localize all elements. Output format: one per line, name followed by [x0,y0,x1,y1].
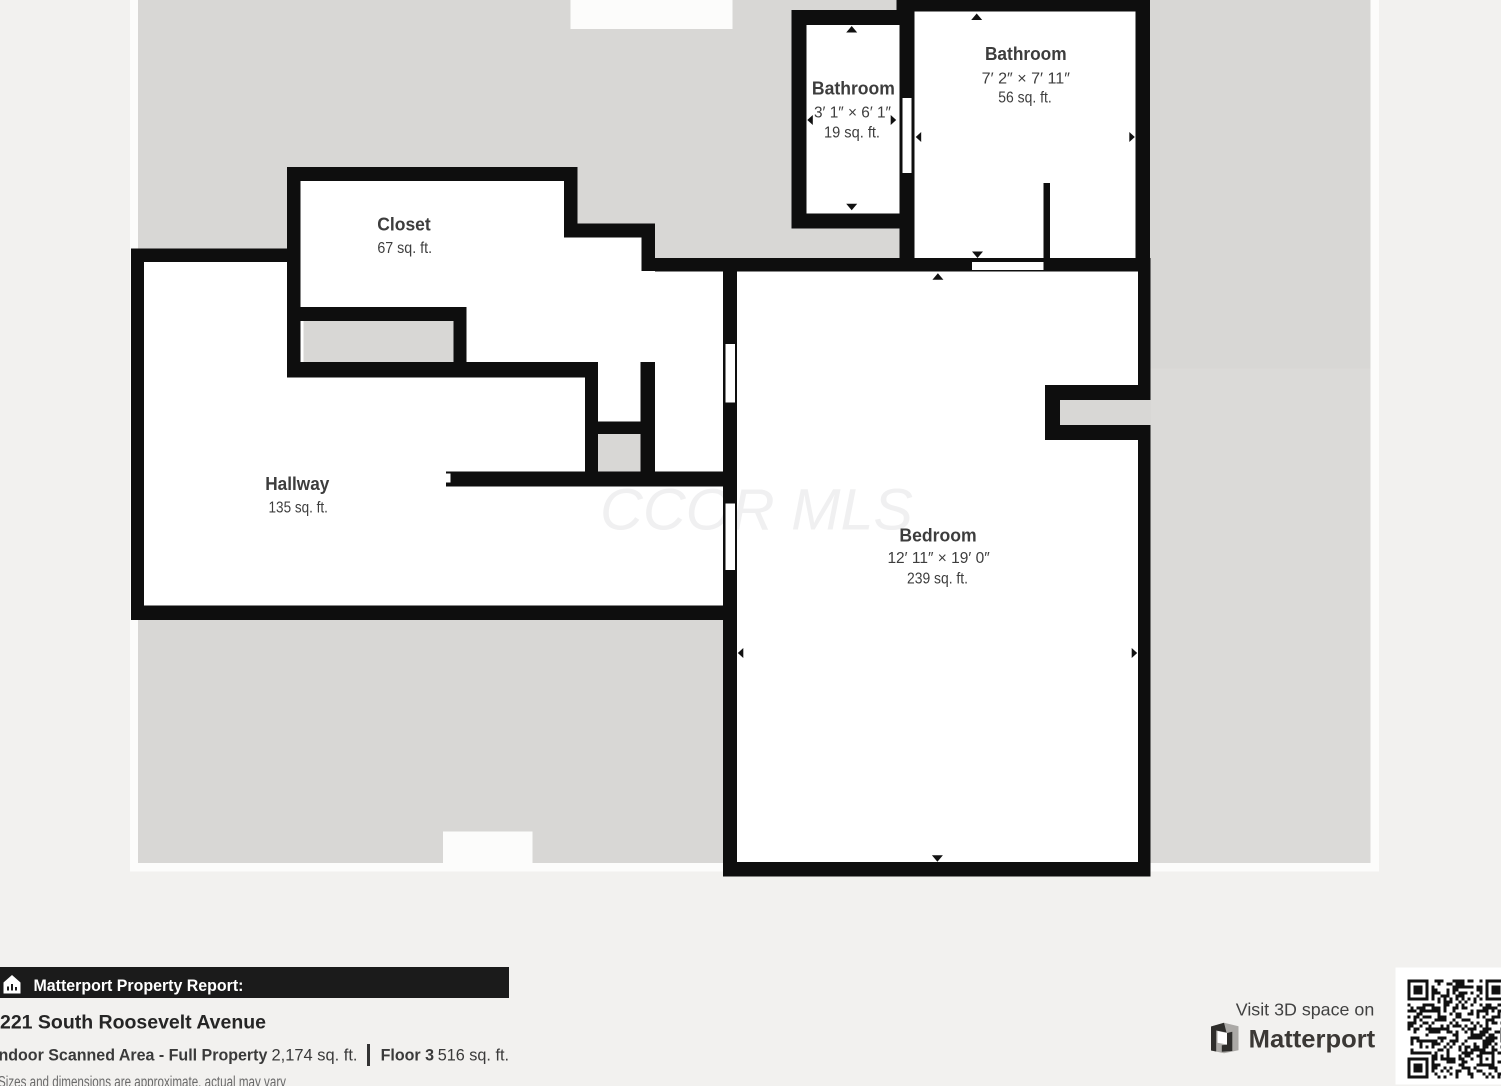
svg-text:135 sq. ft.: 135 sq. ft. [269,499,328,516]
svg-text:67 sq. ft.: 67 sq. ft. [377,240,432,257]
svg-text:56 sq. ft.: 56 sq. ft. [998,90,1051,107]
svg-text:Bathroom: Bathroom [812,78,895,98]
svg-text:Visit 3D space on: Visit 3D space on [1236,999,1375,1019]
svg-text:239 sq. ft.: 239 sq. ft. [907,571,968,588]
svg-text:7′ 2″ × 7′ 11″: 7′ 2″ × 7′ 11″ [982,70,1071,87]
svg-text:221 South Roosevelt Avenue: 221 South Roosevelt Avenue [0,1012,266,1034]
svg-text:19 sq. ft.: 19 sq. ft. [824,125,880,142]
svg-text:Indoor Scanned Area - Full Pro: Indoor Scanned Area - Full Property [0,1045,268,1064]
svg-text:CCOR MLS: CCOR MLS [600,478,913,543]
svg-text:516 sq. ft.: 516 sq. ft. [438,1045,509,1064]
svg-text:Closet: Closet [377,215,431,235]
svg-text:Matterport: Matterport [1249,1026,1376,1054]
svg-text:3′ 1″ × 6′ 1″: 3′ 1″ × 6′ 1″ [814,105,891,122]
svg-text:12′ 11″ × 19′ 0″: 12′ 11″ × 19′ 0″ [887,550,990,567]
svg-text:Matterport Property Report:: Matterport Property Report: [34,976,244,995]
svg-text:Floor 3: Floor 3 [381,1045,434,1064]
svg-text:Bedroom: Bedroom [899,526,976,546]
svg-text:Sizes and dimensions are appro: Sizes and dimensions are approximate, ac… [0,1074,286,1086]
svg-text:Bathroom: Bathroom [985,44,1067,64]
svg-text:Hallway: Hallway [265,474,329,494]
svg-text:2,174 sq. ft.: 2,174 sq. ft. [272,1045,358,1064]
